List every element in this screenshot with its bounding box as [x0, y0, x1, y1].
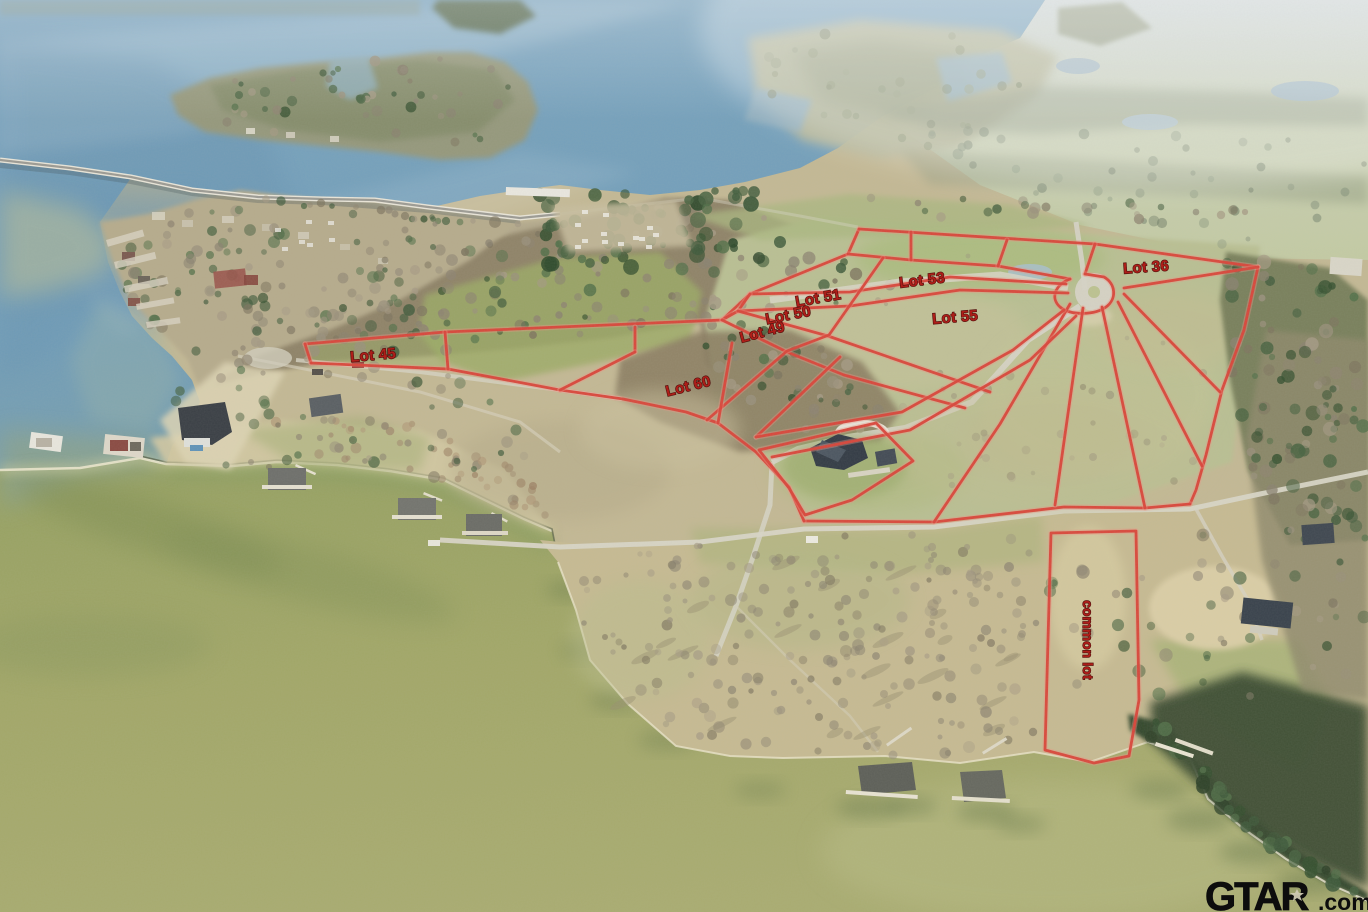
svg-text:.com: .com	[1318, 889, 1368, 912]
